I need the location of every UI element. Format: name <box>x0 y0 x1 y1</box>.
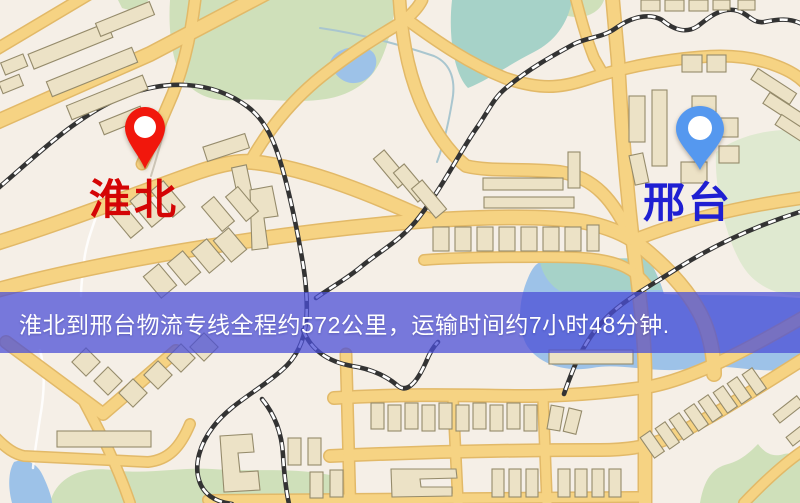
route-info-text: 淮北到邢台物流专线全程约572公里，运输时间约7小时48分钟. <box>19 306 670 340</box>
route-info-banner: 淮北到邢台物流专线全程约572公里，运输时间约7小时48分钟. <box>0 292 800 353</box>
origin-city-label: 淮北 <box>89 179 179 221</box>
destination-pin-icon[interactable] <box>676 106 724 170</box>
destination-city-label: 邢台 <box>643 182 733 224</box>
map-canvas[interactable]: 淮北 邢台 淮北到邢台物流专线全程约572公里，运输时间约7小时48分钟. <box>0 0 800 503</box>
origin-pin-icon[interactable] <box>125 107 165 169</box>
base-map <box>0 0 800 503</box>
